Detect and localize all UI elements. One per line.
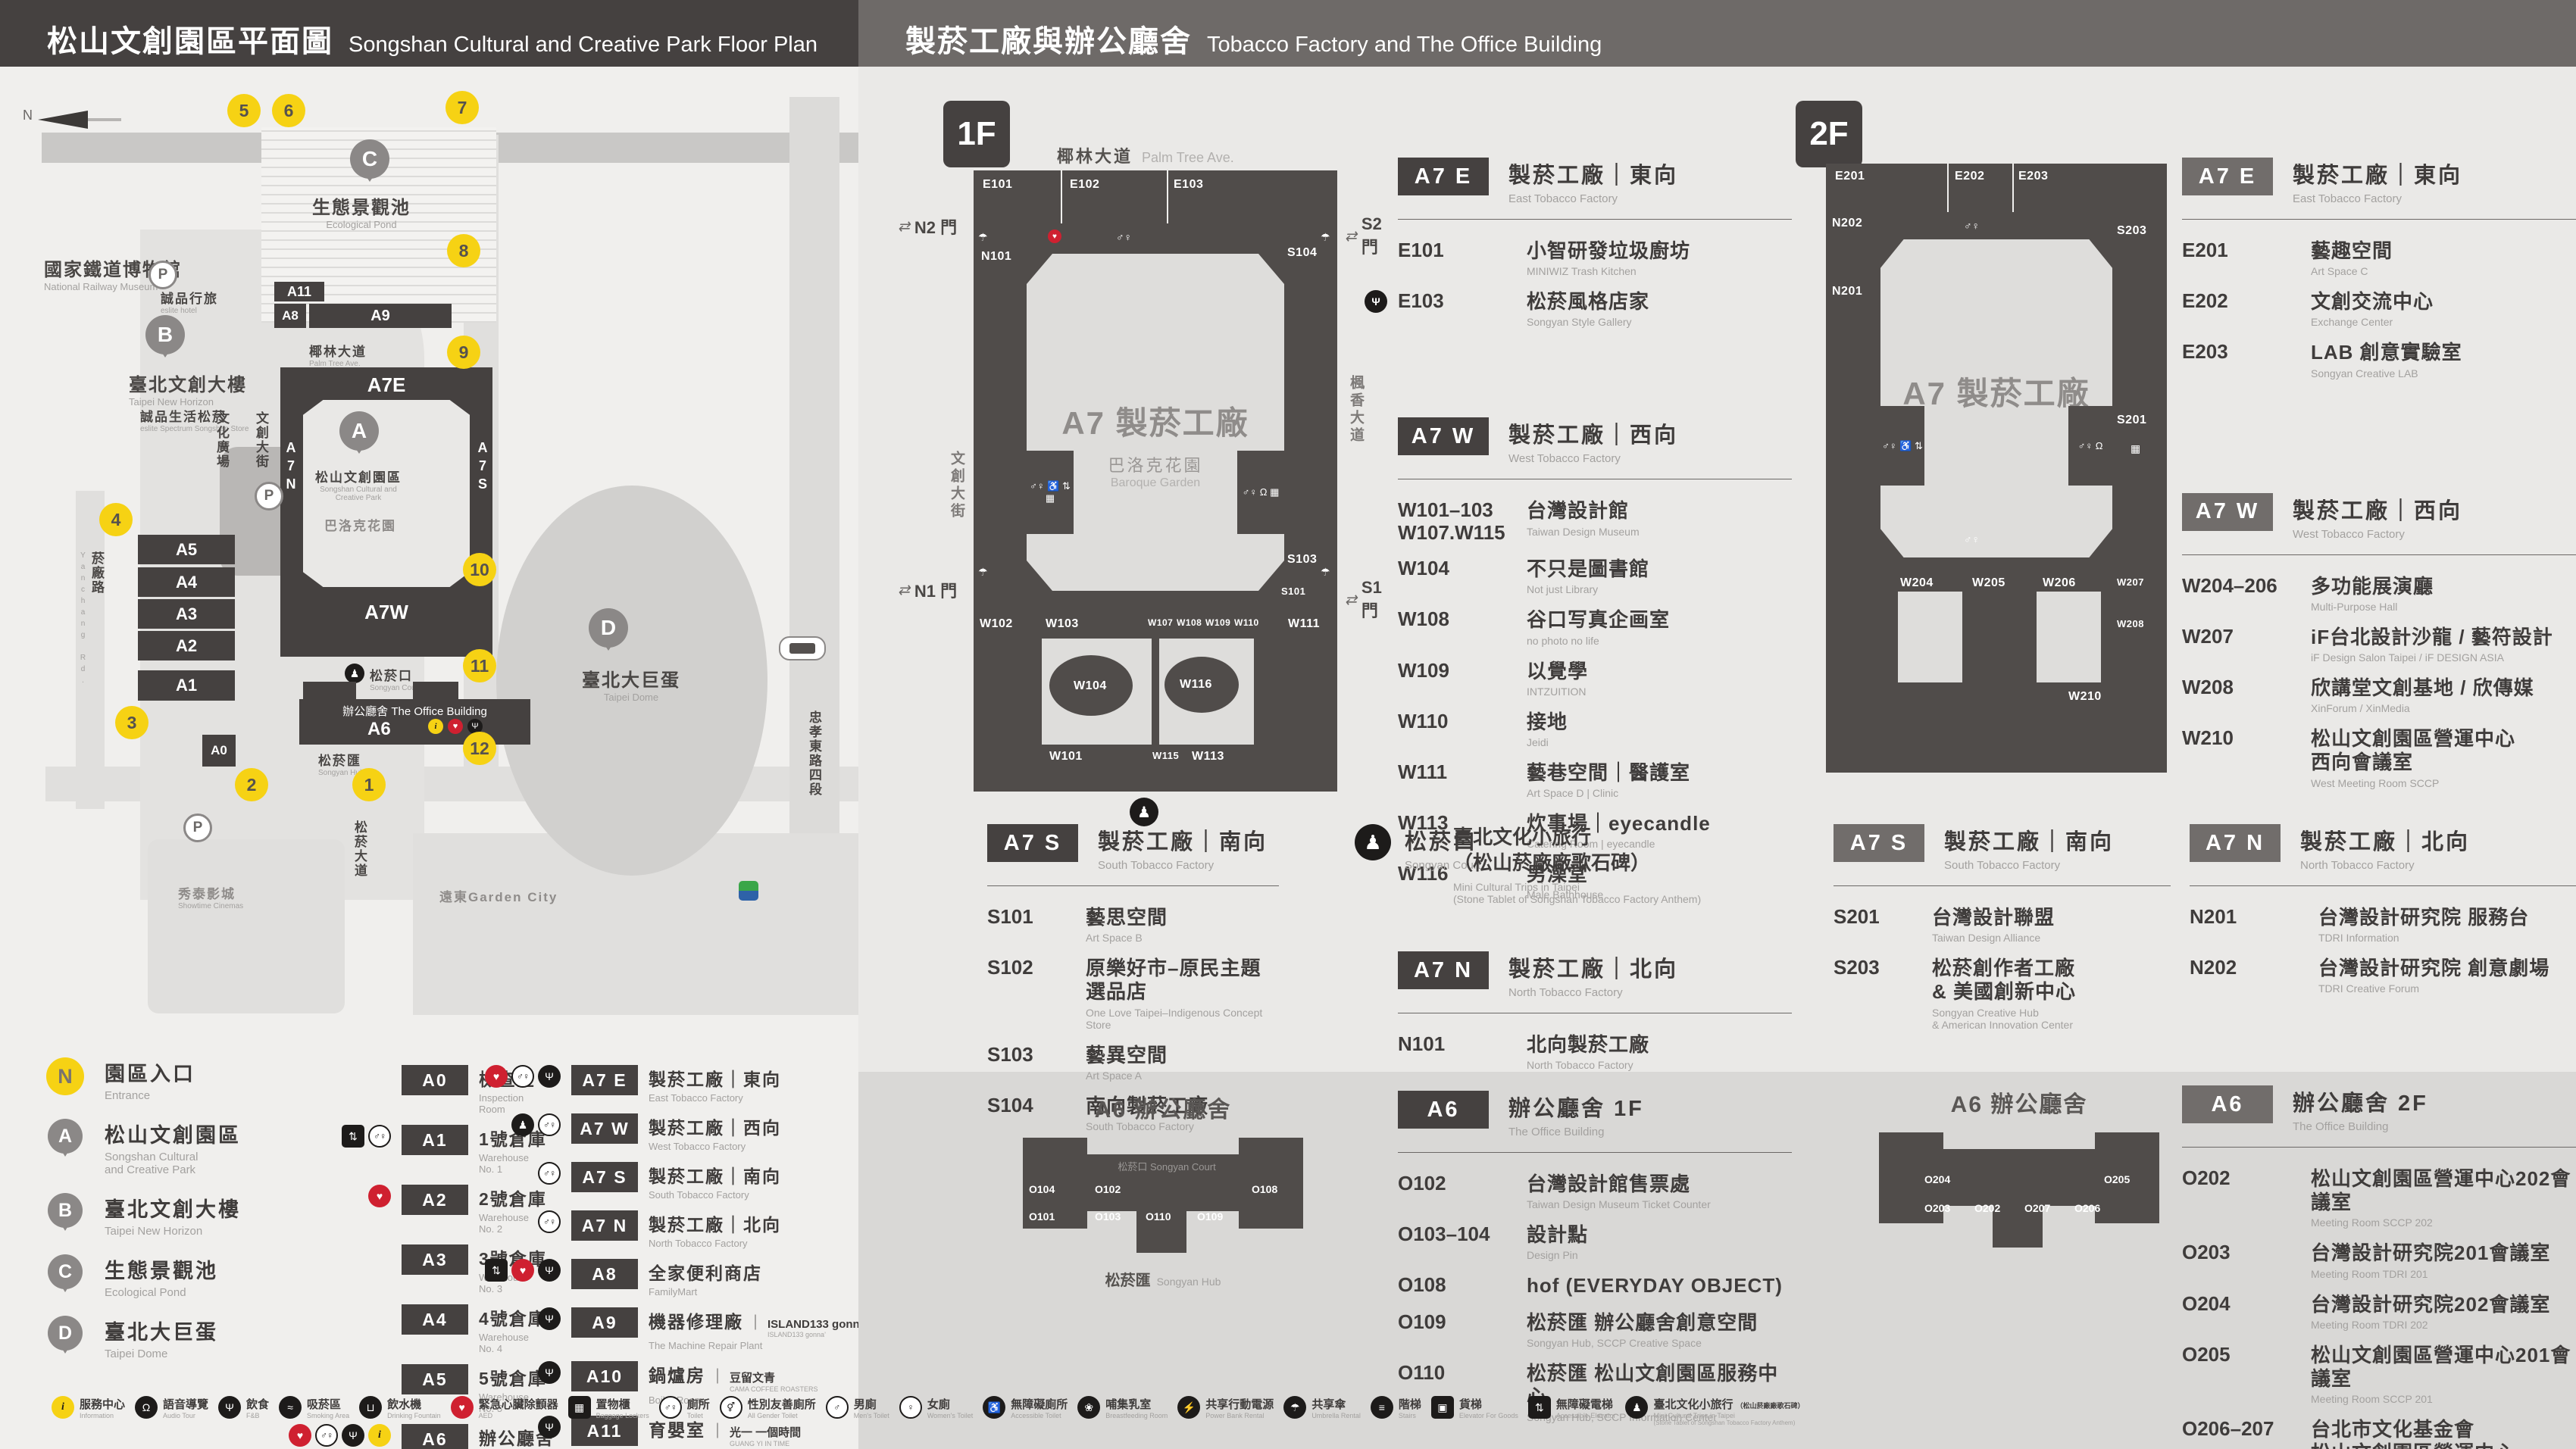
entrance-11: 11: [463, 649, 496, 682]
room-list-item: O202 松山文創園區營運中心202會議室Meeting Room SCCP 2…: [2182, 1167, 2576, 1229]
room-name-en: Songyan Creative Hub & American Innovati…: [1932, 1007, 2076, 1031]
room-name-zh: iF台北設計沙龍 / 藝符設計: [2311, 626, 2553, 649]
aed-icon: ♥: [485, 1065, 508, 1088]
info-icon: i: [428, 719, 443, 734]
room-code: E203: [2182, 340, 2228, 363]
section-a7s-2f: A7 S 製菸工廠｜南向South Tobacco Factory S201 台…: [1834, 824, 2171, 1044]
facility-name-zh: 飲食: [246, 1396, 269, 1412]
facility-legend-item: ▦ 置物櫃 Baggage Lockers: [568, 1396, 649, 1419]
room-code: O110: [1398, 1361, 1445, 1384]
room-name-zh: 多功能展演廳: [2311, 575, 2434, 598]
building-name-en: South Tobacco Factory: [649, 1189, 781, 1201]
room-list-item: W210 松山文創園區營運中心 西向會議室West Meeting Room S…: [2182, 727, 2576, 789]
room-name-zh: 台灣設計研究院 服務台: [2318, 906, 2529, 929]
toilet-icon: ♂♀: [538, 1162, 561, 1185]
room-list-item: W101–103 W107.W115 台灣設計館Taiwan Design Mu…: [1398, 499, 1792, 545]
baroque-label: 巴洛克花園: [324, 515, 396, 534]
building-name-zh: 製菸工廠｜東向: [649, 1065, 781, 1091]
umbrella-icon: ☂: [1283, 1396, 1306, 1419]
legend-building-row: ♂♀ A7 N 製菸工廠｜北向 North Tobacco Factory: [476, 1210, 858, 1249]
entrance-1: 1: [352, 768, 386, 801]
entrance-marker-icon: N: [46, 1057, 84, 1095]
facility-block-east: ♂♀ Ω ▦: [1237, 451, 1284, 534]
gate-s2: ⇄S2 門: [1345, 214, 1382, 258]
room-code: W207: [2182, 625, 2234, 648]
plan-room-o206: O206: [2074, 1202, 2100, 1214]
facility-legend-item: ♟ 臺北文化小旅行 （松山菸廠廠歌石碑） Mini Cultural Trips…: [1625, 1396, 1804, 1426]
aed-icon: ♥: [289, 1424, 311, 1447]
plan-room-o205: O205: [2104, 1173, 2130, 1185]
room-name-zh: 松山文創園區營運中心202會議室: [2311, 1167, 2576, 1214]
section-a6-1f: A6 辦公廳舍 1FThe Office Building O102 台灣設計館…: [1398, 1091, 1792, 1436]
maple-ave-street-label: 楓香大道: [1346, 375, 1366, 445]
room-name-zh: 設計點: [1527, 1223, 1588, 1247]
room-list-item: ΨE103 松菸風格店家Songyan Style Gallery: [1398, 290, 1792, 328]
plan-room-w208: W208: [2117, 618, 2144, 629]
toilet-icon: ♂♀: [368, 1125, 391, 1148]
room-list-item: W207 iF台北設計沙龍 / 藝符設計iF Design Salon Taip…: [2182, 626, 2576, 664]
facility-legend-item: ☂ 共享傘 Umbrella Rental: [1283, 1396, 1361, 1419]
court-icon: ♟: [511, 1113, 534, 1136]
plan-room-n202: N202: [1832, 217, 1862, 230]
facility-name-en: Drinking Fountain: [387, 1412, 441, 1419]
plan-room-w207: W207: [2117, 576, 2144, 588]
plan-room-o203: O203: [1924, 1202, 1950, 1214]
fountain-icon: ⊔: [359, 1396, 382, 1419]
room-name-en: Taiwan Design Museum: [1527, 526, 1640, 538]
umbrella-icon: ☂: [978, 231, 988, 244]
pond-label: 生態景觀池 Ecological Pond: [312, 192, 411, 230]
room-code: E202: [2182, 289, 2228, 312]
dome-label: 臺北大巨蛋 Taipei Dome: [567, 665, 696, 703]
umbrella-icon: ☂: [1321, 231, 1330, 244]
floor-badge-1f: 1F: [943, 101, 1010, 167]
room-name-zh: 欣講堂文創基地 / 欣傳媒: [2311, 676, 2534, 700]
powerbank-icon: ⚡: [1177, 1396, 1200, 1419]
map-building-a2: A2: [138, 631, 235, 660]
building-name-en: West Tobacco Factory: [649, 1141, 781, 1152]
a6-plan-1f: A6 辦公廳舍 松菸口 Songyan Court O104 O102 O108…: [1023, 1091, 1303, 1298]
room-name-zh: LAB 創意實驗室: [2311, 341, 2462, 364]
road-zhongxiao: [789, 97, 839, 930]
facility-legend-item: ♂♀ 廁所 Toilet: [659, 1396, 710, 1419]
aed-icon: ♥: [448, 719, 463, 734]
facility-name-zh2: （松山菸廠廠歌石碑）: [1736, 1401, 1804, 1410]
room-name-en: Meeting Room TDRI 202: [2311, 1319, 2550, 1331]
facility-name-zh: 語音導覽: [163, 1396, 208, 1412]
building-badge: A3: [402, 1244, 468, 1275]
place-pin-icon: A: [48, 1119, 83, 1154]
brand-name-en: ISLAND133 gonna’: [767, 1331, 858, 1338]
plan-room-s201: S201: [2117, 414, 2146, 427]
room-code: E103: [1398, 289, 1444, 312]
pin-c: C: [350, 139, 389, 179]
section-badge: A7 S: [1834, 824, 1924, 862]
room-code: O204: [2182, 1292, 2231, 1315]
plan-room-n101: N101: [981, 250, 1011, 264]
showtime-block: [148, 839, 345, 1013]
showtime-label: 秀泰影城 Showtime Cinemas: [178, 883, 243, 910]
room-list-item: O109 松菸匯 辦公廳舍創意空間Songyan Hub, SCCP Creat…: [1398, 1311, 1792, 1349]
room-name-en: Meeting Room SCCP 202: [2311, 1216, 2576, 1229]
metro-logo-icon: [739, 881, 758, 901]
building-name-en: North Tobacco Factory: [649, 1238, 781, 1249]
map-building-a7: A7E A7N A7S A7W: [280, 367, 492, 657]
room-code: S201: [1834, 905, 1880, 928]
pin-b: B: [145, 315, 185, 354]
facility-name-zh: 共享行動電源: [1205, 1396, 1274, 1412]
room-code: N202: [2190, 956, 2237, 979]
legend-place-row: N 園區入口 Entrance: [44, 1057, 294, 1102]
plan-room-w108: W108: [1177, 617, 1202, 628]
brand-name-zh: 光一 一個時間: [730, 1424, 801, 1440]
aed-icon: ♥: [368, 1185, 391, 1207]
restaurant-icon: Ψ: [538, 1307, 561, 1330]
room-list-item: S201 台灣設計聯盟Taiwan Design Alliance: [1834, 906, 2171, 944]
building-badge: A10: [571, 1361, 638, 1391]
elevator-icon: ⇅: [342, 1125, 364, 1148]
gate-n2: ⇄N2 門: [898, 214, 957, 239]
room-list-item: W109 以覺學INTZUITION: [1398, 660, 1792, 698]
audio-icon: Ω: [135, 1396, 158, 1419]
floor-plan-2f: A7 製菸工廠 ♂♀ ♿ ⇅ ♂♀ Ω E201 E202 E203 N202 …: [1826, 164, 2167, 773]
room-code: O108: [1398, 1273, 1446, 1296]
plan-room-n201: N201: [1832, 285, 1862, 298]
plan-room-w205: W205: [1972, 576, 2005, 590]
plan-room-w101: W101: [1049, 750, 1083, 764]
facility-name-zh: 緊急心臟除顫器: [479, 1396, 558, 1412]
bus-stop-icon: [779, 636, 826, 660]
facility-name-zh: 貨梯: [1459, 1396, 1482, 1412]
map-a7n-label: A7N: [283, 440, 299, 495]
plan-room-w210: W210: [2068, 690, 2102, 704]
header-left-title-zh: 松山文創園區平面圖: [47, 17, 333, 61]
legend-place-row: D 臺北大巨蛋 Taipei Dome: [44, 1316, 294, 1360]
room-code: N101: [1398, 1032, 1445, 1055]
room-name-en: TDRI Information: [2318, 932, 2529, 944]
cultural-plaza-label: 文化廣場: [212, 411, 231, 469]
map-building-a4: A4: [138, 567, 235, 597]
room-code: W210: [2182, 726, 2234, 749]
building-badge: A1: [402, 1125, 468, 1155]
aed-icon: ♥: [451, 1396, 474, 1419]
entrance-10: 10: [463, 553, 496, 586]
legend-building-row: ⇅♥Ψ A8 全家便利商店 FamilyMart: [476, 1259, 858, 1298]
place-name-zh: 生態景觀池: [105, 1254, 218, 1284]
building-badge: A0: [402, 1065, 468, 1095]
room-list-item: N101 北向製菸工廠North Tobacco Factory: [1398, 1033, 1792, 1071]
songyan-court-icon: ♟: [1355, 824, 1391, 860]
room-name-en: Taiwan Design Museum Ticket Counter: [1527, 1198, 1711, 1210]
room-name-zh: 接地: [1527, 710, 1568, 734]
facility-block-west: ♂♀ ♿ ⇅ ▦: [1027, 451, 1074, 534]
elevator-icon: ⇅: [485, 1259, 508, 1282]
plan-room-o101: O101: [1029, 1210, 1055, 1223]
facility-legend-item: ⇅ 無障礙電梯 Accessible Elevator: [1528, 1396, 1616, 1419]
room-code: S101: [987, 905, 1033, 928]
brand-name-en: GUANG YI IN TIME: [730, 1440, 801, 1447]
tobacco-factory-panel: 1F 2F 椰林大道 Palm Tree Ave. 文創大街 楓香大道 A7 製…: [858, 67, 2576, 1449]
building-badge: A2: [402, 1185, 468, 1215]
allgender-icon: ⚥: [720, 1396, 742, 1419]
map-a7s-label: A7S: [474, 440, 490, 495]
facility-block-east: ♂♀ Ω: [2068, 406, 2112, 486]
toilet-icon: ♂♀: [1964, 220, 1980, 232]
room-list-item: O203 台灣設計研究院201會議室Meeting Room TDRI 201: [2182, 1241, 2576, 1279]
building-name-zh: 全家便利商店: [649, 1259, 762, 1285]
place-name-en: Taipei Dome: [105, 1348, 218, 1360]
plan-room-w204: W204: [1900, 576, 1934, 590]
legend-place-row: C 生態景觀池 Ecological Pond: [44, 1254, 294, 1299]
legend-building-row: ♂♀ A7 S 製菸工廠｜南向 South Tobacco Factory: [476, 1162, 858, 1201]
facility-legend-item: ♿ 無障礙廁所 Accessible Toilet: [983, 1396, 1068, 1419]
room-name-en: Jeidi: [1527, 736, 1568, 748]
room-list-item: O108 hof (EVERYDAY OBJECT): [1398, 1274, 1792, 1298]
compass-north-icon: N: [23, 111, 121, 129]
facility-name-en: Breastfeeding Room: [1105, 1412, 1168, 1419]
place-name-en: Songshan Cultural and Creative Park: [105, 1151, 241, 1176]
plan-room-e202: E202: [1955, 170, 1984, 183]
map-building-a3: A3: [138, 599, 235, 629]
facility-name-en: Audio Tour: [163, 1412, 208, 1419]
facility-name-zh: 飲水機: [387, 1396, 421, 1412]
facility-name-en2: (Stone Tablet of Songshan Tobacco Factor…: [1653, 1419, 1804, 1426]
room-list-item: S102 原樂好市–原民主題選品店One Love Taipei–Indigen…: [987, 957, 1279, 1030]
room-list-item: O102 台灣設計館售票處Taiwan Design Museum Ticket…: [1398, 1173, 1792, 1210]
court-desc-en: Mini Cultural Trips in Taipei (Stone Tab…: [1453, 881, 1790, 905]
parking-icon: P: [148, 261, 177, 289]
pin-a: A: [339, 411, 379, 451]
room-code: S203: [1834, 956, 1880, 979]
room-name-zh: 松山文創園區營運中心201會議室: [2311, 1344, 2576, 1391]
room-name-zh: 台北市文化基金會 松山文創園區營運中心: [2311, 1418, 2564, 1449]
floor-plan-1f: 椰林大道 Palm Tree Ave. 文創大街 楓香大道 A7 製菸工廠 巴洛…: [974, 170, 1337, 792]
breastfeeding-icon: ❀: [1077, 1396, 1100, 1419]
new-horizon-label: 臺北文創大樓 Taipei New Horizon: [129, 370, 247, 408]
room-list-item: O206–207 台北市文化基金會 松山文創園區營運中心Taipei Cultu…: [2182, 1418, 2576, 1449]
room-name-en: One Love Taipei–Indigenous Concept Store: [1086, 1007, 1279, 1031]
songyan-ave-label: 松菸大道: [350, 820, 369, 878]
trips-icon: ♟: [1625, 1396, 1648, 1419]
header-right-title-en: Tobacco Factory and The Office Building: [1207, 33, 1602, 58]
facility-name-en: Smoking Area: [307, 1412, 349, 1419]
section-badge: A6: [1398, 1091, 1489, 1129]
place-pin-icon: B: [48, 1193, 83, 1228]
room-list-item: W108 谷口写真企画室no photo no life: [1398, 608, 1792, 646]
room-name-zh: 不只是圖書館: [1527, 557, 1649, 581]
room-name-en: Exchange Center: [2311, 316, 2434, 328]
room-name-en: West Meeting Room SCCP: [2311, 777, 2515, 789]
garden-city-label: 遠東Garden City: [439, 886, 558, 905]
smoking-icon: ≈: [279, 1396, 302, 1419]
facility-legend-item: ⊔ 飲水機 Drinking Fountain: [359, 1396, 441, 1419]
map-building-a11: A11: [274, 282, 324, 301]
section-a6-2f: A6 辦公廳舍 2FThe Office Building O202 松山文創園…: [2182, 1085, 2576, 1449]
toilet-icon: ♂♀: [1964, 533, 1980, 545]
facility-legend-item: Ω 語音導覽 Audio Tour: [135, 1396, 208, 1419]
room-name-zh: 北向製菸工廠: [1527, 1033, 1649, 1057]
room-name-zh: 藝趣空間: [2311, 239, 2393, 263]
info-icon: i: [368, 1424, 391, 1447]
restaurant-icon: Ψ: [538, 1259, 561, 1282]
plan-room-o109: O109: [1197, 1210, 1223, 1223]
building-name-zh: 機器修理廠: [649, 1307, 743, 1333]
facility-name-zh: 廁所: [687, 1396, 710, 1412]
room-code: S102: [987, 956, 1033, 979]
facility-legend-item: ▣ 貨梯 Elevator For Goods: [1431, 1396, 1518, 1419]
room-list-item: W111 藝巷空間｜醫護室Art Space D | Clinic: [1398, 761, 1792, 799]
facility-name-zh: 哺集乳室: [1105, 1396, 1151, 1412]
facility-name-zh: 吸菸區: [307, 1396, 341, 1412]
facility-name-en: Information: [80, 1412, 125, 1419]
entrance-6: 6: [272, 94, 305, 127]
building-badge: A8: [571, 1259, 638, 1289]
room-list-item: O204 台灣設計研究院202會議室Meeting Room TDRI 202: [2182, 1293, 2576, 1331]
facility-name-en: Stairs: [1399, 1412, 1421, 1419]
park-map-panel: N 國家鐵道博物館 National Railway Museum 誠品行旅 e…: [0, 67, 858, 1449]
facility-name-en: Toilet: [687, 1412, 710, 1419]
brand-name-zh: ISLAND133 gonna’: [767, 1318, 858, 1331]
plan-room-w113: W113: [1192, 750, 1224, 764]
plan-room-w111: W111: [1288, 617, 1320, 631]
place-name-zh: 臺北大巨蛋: [105, 1316, 218, 1345]
list-column-1f: A7 E 製菸工廠｜東向East Tobacco Factory E101 小智…: [1398, 158, 1792, 913]
building-name-en: The Machine Repair Plant: [649, 1340, 858, 1351]
plan-room-w110: W110: [1234, 617, 1259, 628]
room-list-item: W208 欣講堂文創基地 / 欣傳媒XinForum / XinMedia: [2182, 676, 2576, 714]
section-badge: A7 E: [2182, 158, 2273, 195]
place-name-en: Entrance: [105, 1089, 195, 1102]
room-list-item: N202 台灣設計研究院 創意劇場TDRI Creative Forum: [2190, 957, 2576, 995]
place-name-zh: 臺北文創大樓: [105, 1193, 241, 1223]
room-name-zh: 松菸匯 辦公廳舍創意空間: [1527, 1311, 1758, 1335]
room-name-en: Not just Library: [1527, 583, 1649, 595]
list-column-2f: A7 E 製菸工廠｜東向East Tobacco Factory E201 藝趣…: [2182, 158, 2576, 802]
plan-room-w103: W103: [1046, 617, 1079, 631]
palm-ave-street-label: 椰林大道 Palm Tree Ave.: [1057, 143, 1234, 167]
section-badge: A7 W: [2182, 493, 2273, 531]
plan-room-e201: E201: [1835, 170, 1865, 183]
room-name-zh: 谷口写真企画室: [1527, 608, 1670, 632]
place-name-en: Taipei New Horizon: [105, 1225, 241, 1238]
facility-name-en: Elevator For Goods: [1459, 1412, 1518, 1419]
building-badge: A6: [402, 1424, 468, 1449]
room-name-en: Taiwan Design Alliance: [1932, 932, 2055, 944]
room-list-item: O205 松山文創園區營運中心201會議室Meeting Room SCCP 2…: [2182, 1344, 2576, 1405]
room-name-zh: 台灣設計館: [1527, 499, 1640, 523]
facility-legend-item: ♥ 緊急心臟除顫器 AED: [451, 1396, 558, 1419]
toilet-icon: ♂♀: [659, 1396, 682, 1419]
stairs-icon: ≡: [1371, 1396, 1393, 1419]
lockers-icon: ▦: [568, 1396, 591, 1419]
room-code: S103: [987, 1043, 1033, 1066]
plan-room-w116: W116: [1180, 678, 1212, 692]
building-badge: A9: [571, 1307, 638, 1338]
building-name-en: East Tobacco Factory: [649, 1092, 781, 1104]
plan-room-w115: W115: [1152, 750, 1179, 761]
plan-room-o202: O202: [1974, 1202, 2000, 1214]
room-list-item: W110 接地Jeidi: [1398, 710, 1792, 748]
plan-room-w109: W109: [1205, 617, 1230, 628]
facility-legend-item: ⚡ 共享行動電源 Power Bank Rental: [1177, 1396, 1274, 1419]
umbrella-icon: ☂: [978, 566, 988, 579]
room-name-en: Design Pin: [1527, 1249, 1588, 1261]
building-badge: A5: [402, 1364, 468, 1394]
eslite-hotel-label: 誠品行旅 eslite hotel: [161, 288, 218, 315]
legend-place-row: A 松山文創園區 Songshan Cultural and Creative …: [44, 1119, 294, 1176]
room-name-zh: 台灣設計聯盟: [1932, 906, 2055, 929]
plan-room-o204: O204: [1924, 1173, 1950, 1185]
entrance-12: 12: [463, 732, 496, 765]
legend-place-row: B 臺北文創大樓 Taipei New Horizon: [44, 1193, 294, 1238]
room-name-en: Art Space B: [1086, 932, 1168, 944]
lockers-icon: ▦: [2131, 442, 2140, 455]
plan-room-w107: W107: [1148, 617, 1173, 628]
plan-room-e103: E103: [1174, 178, 1203, 192]
aed-icon: ♥: [511, 1259, 534, 1282]
plan-room-o102: O102: [1095, 1183, 1121, 1195]
room-name-zh: 台灣設計館售票處: [1527, 1173, 1711, 1196]
room-list-item: E202 文創交流中心Exchange Center: [2182, 290, 2576, 328]
restaurant-icon: Ψ: [538, 1361, 561, 1384]
facility-name-en: Power Bank Rental: [1205, 1412, 1274, 1419]
facility-name-zh: 共享傘: [1311, 1396, 1346, 1412]
room-code: W110: [1398, 710, 1449, 732]
a6-plan-title: A6 辦公廳舍: [1879, 1085, 2159, 1119]
building-name-zh: 鍋爐房: [649, 1361, 705, 1387]
plan-center-label-1f: A7 製菸工廠: [974, 398, 1337, 444]
room-code: O202: [2182, 1166, 2231, 1189]
room-name-zh: 以覺學: [1527, 660, 1588, 683]
facility-legend-item: ❀ 哺集乳室 Breastfeeding Room: [1077, 1396, 1168, 1419]
map-a7w-label: A7W: [303, 589, 470, 635]
gate-n1: ⇄N1 門: [898, 578, 957, 602]
entrance-4: 4: [99, 503, 133, 536]
toilet-icon: ♂♀: [538, 1113, 561, 1136]
room-list-item: E101 小智研發垃圾廚坊MINIWIZ Trash Kitchen: [1398, 239, 1792, 277]
facility-name-en: Accessible Toilet: [1011, 1412, 1068, 1419]
header-left: 松山文創園區平面圖 Songshan Cultural and Creative…: [0, 0, 858, 67]
brand-name-zh: 豆留文青: [730, 1369, 818, 1385]
room-name-en: XinForum / XinMedia: [2311, 702, 2534, 714]
legend-building-row: ♟♂♀ A7 W 製菸工廠｜西向 West Tobacco Factory: [476, 1113, 858, 1152]
facility-name-zh: 階梯: [1399, 1396, 1421, 1412]
cultural-blvd-street-label: 文創大街: [946, 451, 967, 520]
facility-legend-item: ⚥ 性別友善廁所 All Gender Toilet: [720, 1396, 816, 1419]
room-name-en: Meeting Room SCCP 201: [2311, 1393, 2576, 1405]
room-code: W104: [1398, 557, 1449, 579]
yanchang-rd-label: 菸廠路 Yanchang Rd.: [79, 551, 106, 688]
room-code: O109: [1398, 1310, 1446, 1333]
facility-legend-item: ≈ 吸菸區 Smoking Area: [279, 1396, 349, 1419]
room-list-item: S203 松菸創作者工廠 & 美國創新中心Songyan Creative Hu…: [1834, 957, 2171, 1030]
room-code: O206–207: [2182, 1417, 2274, 1440]
place-name-zh: 松山文創園區: [105, 1119, 241, 1148]
a6-plan-title: A6 辦公廳舍: [1023, 1091, 1303, 1124]
facility-name-en: All Gender Toilet: [748, 1412, 816, 1419]
room-list-item: E201 藝趣空間Art Space C: [2182, 239, 2576, 277]
songyan-court-icon: ♟: [1130, 798, 1158, 826]
facility-name-zh: 無障礙廁所: [1011, 1396, 1068, 1412]
facility-name-zh: 性別友善廁所: [748, 1396, 816, 1412]
room-name-en: Multi-Purpose Hall: [2311, 601, 2434, 613]
room-code: W109: [1398, 659, 1449, 682]
plan-room-s103: S103: [1287, 553, 1317, 567]
facility-name-zh: 女廁: [927, 1396, 950, 1412]
eslite-spectrum-label: 誠品生活松菸 eslite Spectrum Songshan Store: [140, 406, 249, 433]
header-left-title-en: Songshan Cultural and Creative Park Floo…: [349, 33, 818, 58]
songyan-hub-label: 松菸匯Songyan Hub: [1023, 1268, 1303, 1290]
